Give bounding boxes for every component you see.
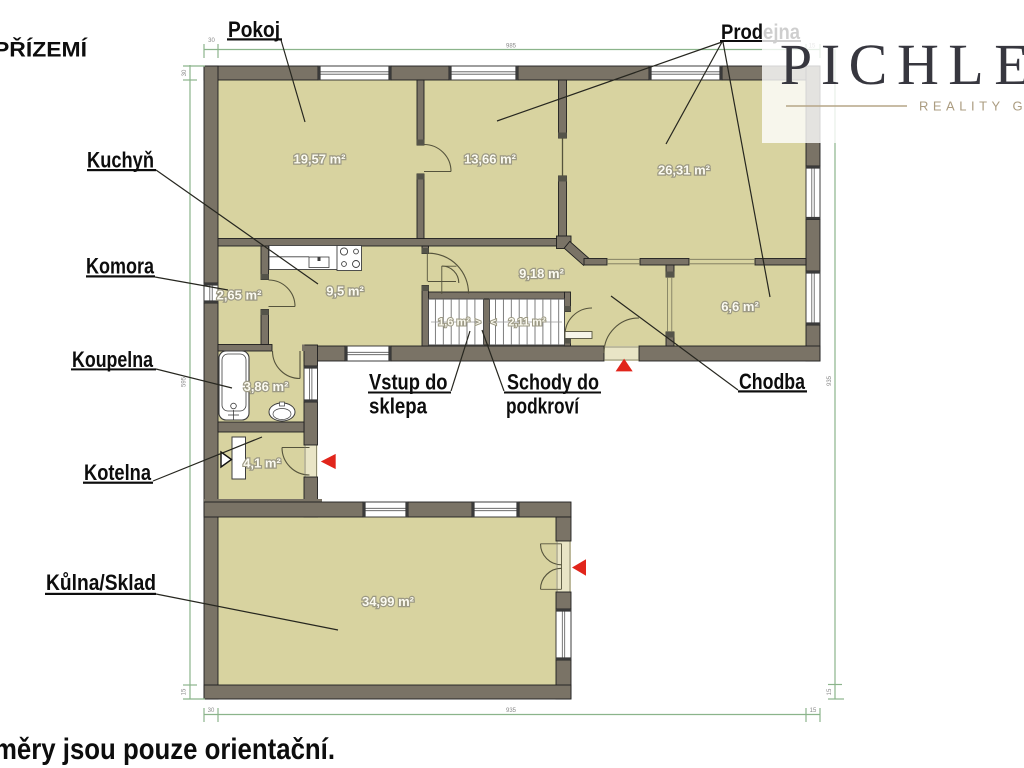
- svg-text:9,5 m²: 9,5 m²: [326, 284, 364, 299]
- svg-text:Schody do: Schody do: [507, 370, 599, 395]
- svg-text:Pokoj: Pokoj: [228, 17, 280, 42]
- svg-text:15: 15: [182, 688, 188, 695]
- svg-text:Kotelna: Kotelna: [84, 460, 152, 485]
- svg-text:I: I: [821, 32, 840, 97]
- svg-text:Kuchyň: Kuchyň: [87, 148, 154, 173]
- svg-text:4,1 m²: 4,1 m²: [243, 456, 281, 471]
- svg-text:C: C: [849, 32, 888, 97]
- svg-text:34,99 m²: 34,99 m²: [362, 594, 415, 609]
- svg-text:REALITY GRO: REALITY GRO: [919, 99, 1024, 114]
- svg-text:P: P: [780, 32, 812, 97]
- svg-text:30: 30: [208, 38, 215, 44]
- svg-text:9,18 m²: 9,18 m²: [519, 266, 564, 281]
- svg-text:>: >: [475, 318, 481, 329]
- svg-text:měry jsou pouze orientační.: měry jsou pouze orientační.: [0, 733, 335, 766]
- svg-text:6,6 m²: 6,6 m²: [721, 299, 759, 314]
- svg-text:1,6 m²: 1,6 m²: [438, 317, 470, 329]
- svg-text:Kůlna/Sklad: Kůlna/Sklad: [46, 570, 156, 595]
- svg-text:19,57 m²: 19,57 m²: [293, 152, 346, 167]
- svg-text:Chodba: Chodba: [739, 369, 806, 394]
- svg-text:13,66 m²: 13,66 m²: [464, 152, 517, 167]
- svg-text:595: 595: [182, 376, 188, 387]
- svg-text:3,86 m²: 3,86 m²: [244, 379, 289, 394]
- svg-text:E: E: [994, 32, 1024, 97]
- svg-text:15: 15: [827, 688, 833, 695]
- svg-text:Vstup do: Vstup do: [369, 370, 448, 395]
- svg-text:podkroví: podkroví: [506, 394, 580, 419]
- svg-text:Koupelna: Koupelna: [72, 347, 154, 372]
- svg-text:2,11 m²: 2,11 m²: [508, 317, 546, 329]
- svg-text:2,65 m²: 2,65 m²: [217, 288, 262, 303]
- svg-text:30: 30: [182, 69, 188, 76]
- svg-text:H: H: [897, 32, 939, 97]
- svg-text:PŘÍZEMÍ: PŘÍZEMÍ: [0, 37, 88, 62]
- svg-text:26,31 m²: 26,31 m²: [658, 163, 711, 178]
- svg-text:30: 30: [208, 708, 215, 714]
- svg-text:935: 935: [827, 375, 833, 386]
- svg-text:985: 985: [506, 44, 517, 50]
- svg-text:<: <: [491, 318, 497, 329]
- svg-text:L: L: [948, 32, 983, 97]
- svg-text:935: 935: [506, 708, 517, 714]
- svg-text:15: 15: [810, 708, 817, 714]
- svg-text:sklepa: sklepa: [369, 394, 428, 419]
- svg-text:Komora: Komora: [86, 254, 155, 279]
